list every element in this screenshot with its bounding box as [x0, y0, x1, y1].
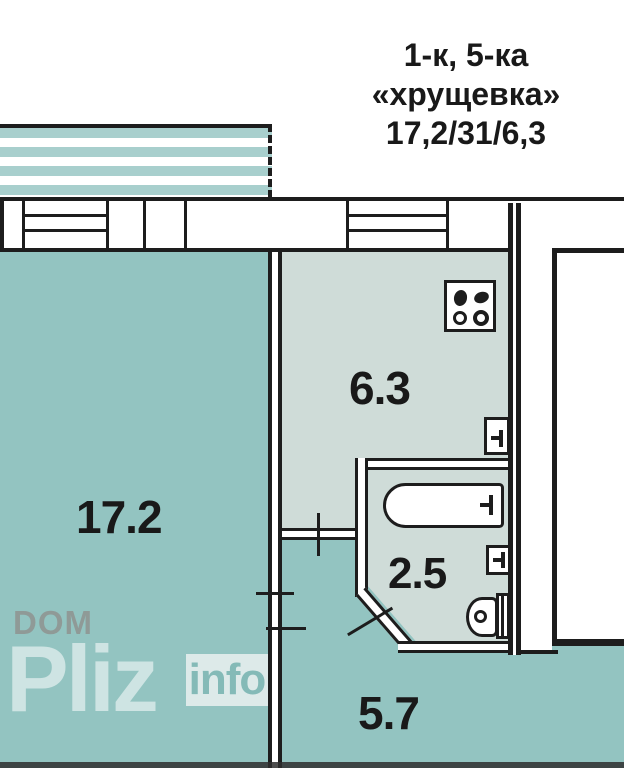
- wall-kitchen-hall: [280, 528, 362, 540]
- faucet-icon: [493, 558, 502, 562]
- entry-gap: [521, 250, 552, 653]
- burner-icon: [452, 289, 468, 307]
- window-icon: [349, 214, 446, 217]
- wall-pier: [106, 201, 109, 248]
- entry-threshold: [519, 650, 558, 654]
- room-living-label: 17.2: [76, 494, 162, 540]
- toilet-bowl-icon: [474, 610, 487, 623]
- toilet-icon: [466, 597, 498, 637]
- wall-pier: [0, 201, 4, 248]
- room-kitchen-label: 6.3: [349, 365, 410, 411]
- balcony: [0, 124, 272, 198]
- exterior-wall: [0, 197, 624, 252]
- wall-pier: [346, 201, 349, 248]
- door-mark: [266, 627, 306, 630]
- bathtub-icon: [383, 483, 504, 528]
- plan-title-line2: «хрущевка»: [320, 75, 612, 114]
- room-bath-label: 2.5: [388, 552, 446, 596]
- tank-line: [501, 596, 504, 636]
- wall-line: [0, 197, 624, 201]
- door-mark: [317, 513, 320, 556]
- adjacent-room: [552, 248, 624, 646]
- wall-bath-top: [355, 458, 521, 470]
- wall-pier: [22, 201, 25, 248]
- wall-bath-bottom: [398, 641, 521, 653]
- wall-pier: [446, 201, 449, 248]
- plan-title: 1-к, 5-ка «хрущевка» 17,2/31/6,3: [320, 36, 612, 153]
- faucet-icon: [480, 503, 490, 507]
- plan-title-line3: 17,2/31/6,3: [320, 114, 612, 153]
- door-mark: [256, 592, 294, 595]
- window-icon: [349, 229, 446, 232]
- plan-title-line1: 1-к, 5-ка: [320, 36, 612, 75]
- stove-icon: [444, 280, 496, 332]
- burner-icon: [473, 290, 491, 305]
- watermark-info-label: info: [186, 654, 268, 706]
- window-icon: [25, 229, 106, 232]
- wall-pier: [143, 201, 146, 248]
- bottom-wall-edge: [0, 762, 624, 768]
- floor-plan: DOM Pliz info: [0, 0, 624, 768]
- faucet-icon: [491, 436, 500, 440]
- watermark-info-box: info: [186, 654, 268, 706]
- wall-pier: [184, 201, 187, 248]
- wall-bath-left: [355, 458, 368, 597]
- watermark-pliz: Pliz: [6, 632, 156, 726]
- room-hall-label: 5.7: [358, 690, 419, 736]
- burner-icon: [453, 311, 467, 325]
- sink-icon: [484, 417, 510, 455]
- window-icon: [25, 214, 106, 217]
- wall-living-hall: [268, 252, 282, 768]
- burner-icon: [473, 310, 489, 326]
